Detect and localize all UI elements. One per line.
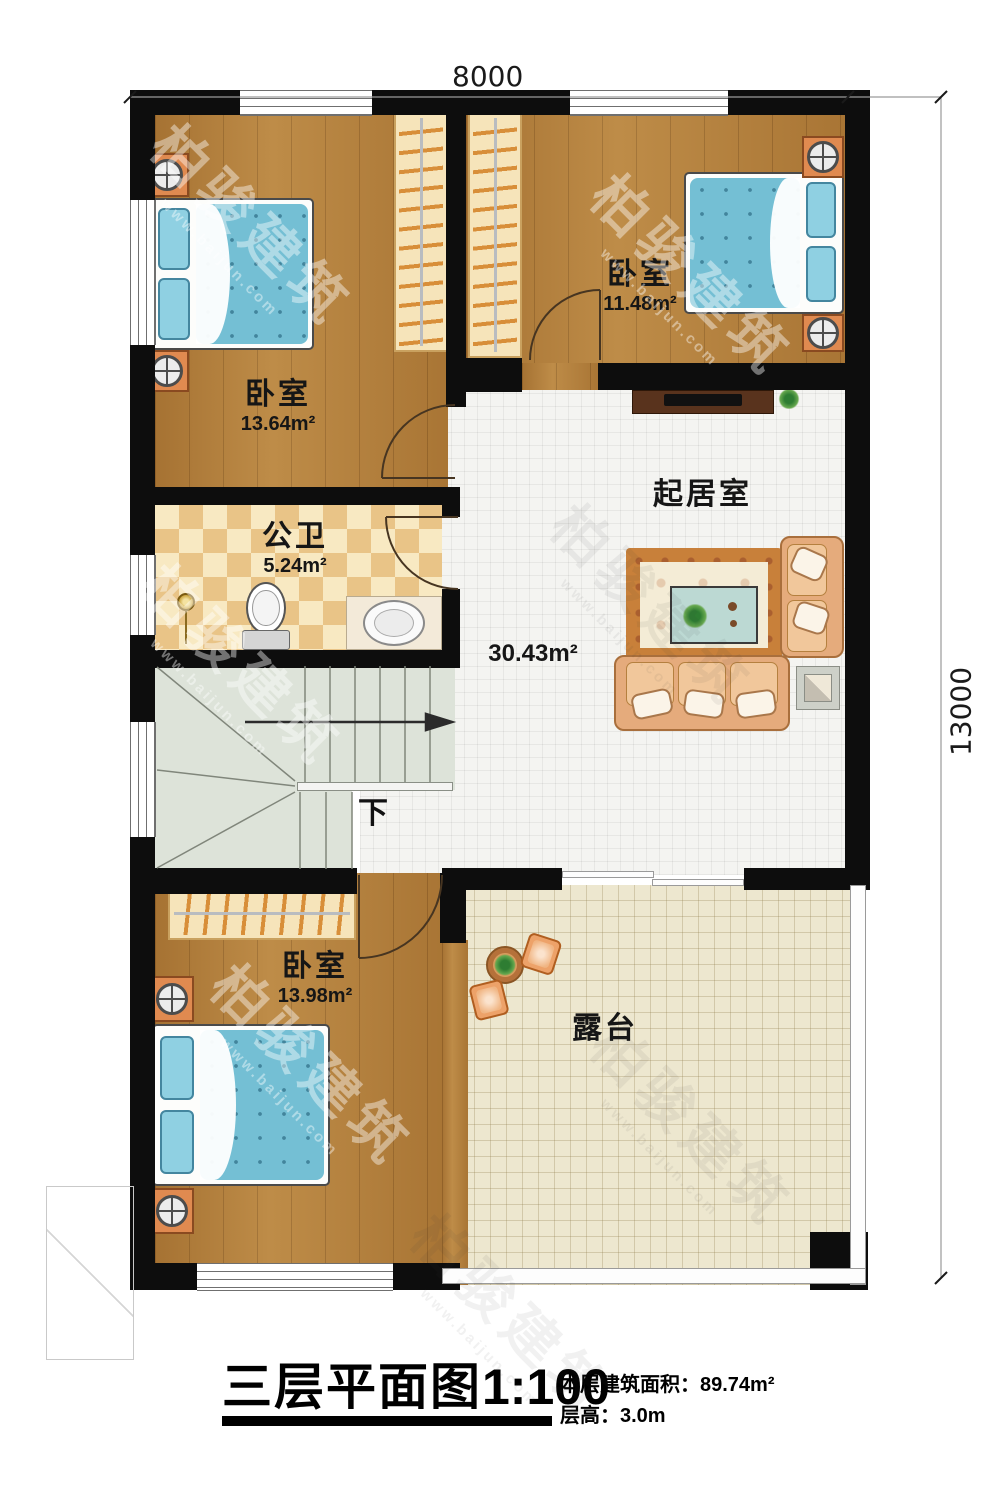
nightstand xyxy=(150,976,194,1022)
stair-direction-label: 下 xyxy=(358,788,388,832)
terrace-parapet-bottom xyxy=(442,1268,866,1284)
pillow xyxy=(806,182,836,238)
wall-stair-bottom xyxy=(130,868,357,894)
toilet-seat xyxy=(252,590,279,627)
decor-dot xyxy=(730,620,737,627)
wall-under-closet-tr xyxy=(466,358,522,392)
title-block: 三层平面图1:100 xyxy=(222,1362,610,1426)
side-table-top xyxy=(804,674,832,702)
adjacent-roof-outline xyxy=(46,1186,134,1360)
sofa-right xyxy=(780,536,844,658)
room-area: 5.24m² xyxy=(263,555,326,578)
window-bottom-bedroom xyxy=(197,1263,393,1291)
nightstand xyxy=(802,314,844,352)
floor-area-value: 89.74m² xyxy=(700,1374,775,1396)
bedroom-top-left-label: 卧室 13.64m² xyxy=(198,378,358,436)
room-area: 13.64m² xyxy=(241,413,316,436)
title-row: 三层平面图1:100 xyxy=(222,1362,610,1412)
terrace-floor xyxy=(442,885,866,1285)
terrace-table-plant xyxy=(494,954,516,976)
wall-terrace-top-right xyxy=(744,868,845,890)
wall-closet-divider-stub xyxy=(446,395,466,407)
bedroom-top-right-door-threshold xyxy=(522,363,598,390)
closet-rod xyxy=(174,912,350,915)
pillow xyxy=(158,208,190,270)
sofa-bottom xyxy=(614,655,790,731)
title-info: 本层建筑面积：89.74m² 层高：3.0m xyxy=(560,1370,775,1432)
room-name: 卧室 xyxy=(607,258,673,293)
sliding-door-panel xyxy=(652,879,744,886)
floor-drain xyxy=(177,593,195,611)
wall-bedroom-tr-bottom xyxy=(598,363,845,390)
flower-decor xyxy=(682,604,708,628)
bathroom-label: 公卫 5.24m² xyxy=(215,520,375,578)
nightstand xyxy=(150,1188,194,1234)
pillow xyxy=(160,1110,194,1174)
sofa-pillow xyxy=(682,688,725,719)
chair-seat xyxy=(527,939,555,969)
side-table xyxy=(796,666,840,710)
coffee-table xyxy=(670,586,758,644)
dimension-top: 8000 xyxy=(452,60,523,93)
room-area: 13.98m² xyxy=(278,985,353,1008)
sofa-pillow xyxy=(734,688,777,719)
sink xyxy=(363,600,425,646)
floor-area-line: 本层建筑面积：89.74m² xyxy=(560,1370,775,1401)
lamp xyxy=(151,159,183,191)
floor-height-line: 层高：3.0m xyxy=(560,1401,775,1432)
nightstand xyxy=(802,136,844,178)
chair-seat xyxy=(475,986,502,1015)
dimension-right: 13000 xyxy=(945,657,978,767)
floor-height-value: 3.0m xyxy=(620,1405,666,1427)
bed-top-left xyxy=(150,198,314,350)
wardrobe-top-left xyxy=(394,112,448,352)
lamp xyxy=(156,1195,188,1227)
lamp xyxy=(807,141,839,173)
room-name: 卧室 xyxy=(282,950,348,985)
title-underline xyxy=(222,1416,552,1426)
stair-area-lower xyxy=(155,790,352,870)
sliding-door-panel xyxy=(562,871,654,878)
plant-icon xyxy=(778,389,800,409)
tv xyxy=(664,394,742,406)
wall-right xyxy=(845,90,870,890)
wall-bathroom-right-lower xyxy=(442,589,460,655)
pillow xyxy=(158,278,190,340)
bedroom-top-right-label: 卧室 11.48m² xyxy=(560,258,720,316)
room-area: 30.43m² xyxy=(488,640,577,668)
floor-height-label: 层高： xyxy=(560,1405,620,1427)
decor-dot xyxy=(728,602,737,611)
wardrobe-top-right xyxy=(468,112,522,358)
living-room-label: 起居室 xyxy=(620,478,785,513)
wardrobe-bottom xyxy=(168,886,356,940)
terrace-left-wood-edge xyxy=(442,940,468,1285)
floor-plan-canvas: 卧室 13.64m² 卧室 11.48m² 公卫 5.24m² 起居室 30.4… xyxy=(0,0,1000,1485)
lamp xyxy=(156,983,188,1015)
room-name: 起居室 xyxy=(653,478,752,513)
wall-bathroom-top xyxy=(130,487,460,505)
window-top-left xyxy=(240,90,372,116)
wall-closet-divider xyxy=(446,103,466,395)
plan-title: 三层平面图 xyxy=(222,1362,482,1412)
wall-bedroom-b-right xyxy=(440,873,466,943)
bed-bottom xyxy=(152,1024,330,1186)
lamp xyxy=(807,317,839,349)
window-left-bathroom xyxy=(130,555,156,635)
toilet-tank xyxy=(242,630,290,650)
pillow xyxy=(806,246,836,302)
blanket xyxy=(770,178,800,308)
wall-bathroom-right-upper xyxy=(442,505,460,517)
pillow xyxy=(160,1036,194,1100)
terrace-parapet-right xyxy=(850,885,866,1285)
living-room-area-label: 30.43m² xyxy=(468,640,598,668)
lamp xyxy=(151,355,183,387)
wall-bathroom-bottom xyxy=(130,650,460,668)
closet-rod xyxy=(494,118,497,352)
toilet xyxy=(246,582,286,634)
sink-basin xyxy=(374,609,414,637)
stair-area-upper xyxy=(155,665,455,790)
bathroom-vanity xyxy=(346,596,442,650)
window-left-bedroom xyxy=(130,200,156,345)
room-area: 11.48m² xyxy=(603,293,676,316)
closet-rod xyxy=(420,118,423,346)
window-left-stairs xyxy=(130,722,156,837)
drain-stem xyxy=(185,610,187,644)
floor-area-label: 本层建筑面积： xyxy=(560,1374,700,1396)
room-name: 露台 xyxy=(572,1012,638,1047)
window-top-right xyxy=(570,90,728,116)
bedroom-bottom-label: 卧室 13.98m² xyxy=(235,950,395,1008)
room-name: 公卫 xyxy=(262,520,328,555)
room-name: 卧室 xyxy=(245,378,311,413)
terrace-label: 露台 xyxy=(540,1012,670,1047)
